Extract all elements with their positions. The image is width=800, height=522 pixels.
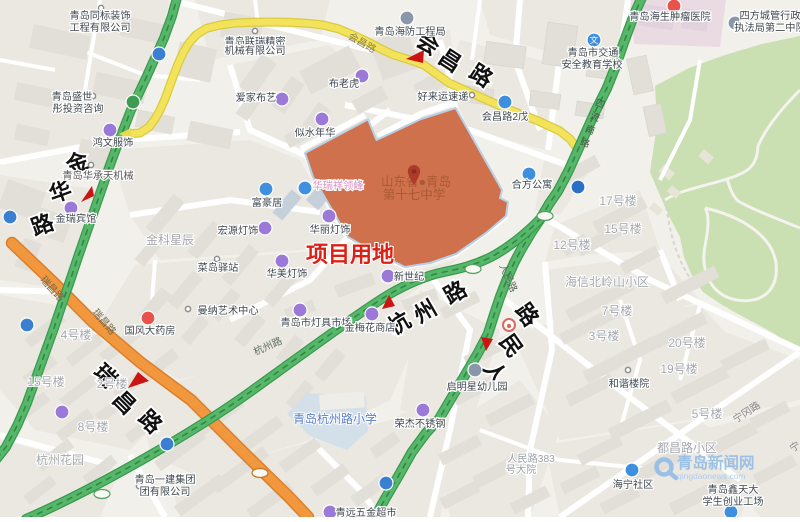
svg-text:曼纳艺术中心: 曼纳艺术中心 — [197, 304, 258, 317]
svg-text:金瑞宾馆: 金瑞宾馆 — [56, 212, 97, 225]
svg-text:荣杰不锈钢: 荣杰不锈钢 — [395, 417, 446, 430]
svg-text:青岛华承天机械: 青岛华承天机械 — [62, 169, 133, 182]
svg-text:7号楼: 7号楼 — [602, 303, 633, 318]
svg-text:安全教育学校: 安全教育学校 — [561, 58, 622, 71]
svg-text:19号楼: 19号楼 — [660, 361, 697, 376]
svg-text:金梅花商店: 金梅花商店 — [345, 321, 396, 334]
svg-text:华瑞祥领峰: 华瑞祥领峰 — [313, 179, 364, 192]
svg-text:15号楼: 15号楼 — [604, 221, 641, 236]
svg-text:都昌路小区: 都昌路小区 — [657, 440, 717, 455]
svg-text:qingdaonews.com: qingdaonews.com — [677, 471, 746, 481]
svg-text:青岛一建集团: 青岛一建集团 — [134, 473, 195, 486]
svg-text:和谐楼院: 和谐楼院 — [609, 377, 650, 390]
svg-text:新世纪: 新世纪 — [394, 270, 425, 283]
svg-text:华美灯饰: 华美灯饰 — [267, 267, 308, 280]
svg-text:海宁社区: 海宁社区 — [613, 478, 654, 491]
svg-text:4号楼: 4号楼 — [61, 327, 92, 342]
svg-text:学生创业工场: 学生创业工场 — [702, 495, 763, 508]
svg-text:第十七中学: 第十七中学 — [383, 187, 446, 202]
svg-text:金科星辰: 金科星辰 — [146, 232, 194, 247]
svg-text:3号楼: 3号楼 — [589, 328, 620, 343]
svg-text:启明星幼儿园: 启明星幼儿园 — [446, 380, 507, 393]
svg-text:机械有限公司: 机械有限公司 — [224, 44, 285, 57]
svg-text:青岛海生肿瘤医院: 青岛海生肿瘤医院 — [629, 10, 711, 23]
svg-text:8号楼: 8号楼 — [78, 419, 109, 434]
svg-text:5号楼: 5号楼 — [692, 406, 723, 421]
svg-text:团有限公司: 团有限公司 — [140, 485, 191, 498]
svg-text:青岛盛世: 青岛盛世 — [52, 90, 93, 103]
svg-text:四方城管行政: 四方城管行政 — [739, 9, 800, 22]
svg-text:爱家布艺: 爱家布艺 — [236, 91, 277, 104]
svg-text:杭州花园: 杭州花园 — [36, 452, 84, 467]
svg-text:青岛新闻网: 青岛新闻网 — [677, 453, 755, 472]
svg-text:2号楼: 2号楼 — [97, 376, 128, 391]
svg-text:青岛海防工程局: 青岛海防工程局 — [374, 25, 445, 38]
svg-text:海信北岭山小区: 海信北岭山小区 — [565, 274, 649, 289]
svg-text:青岛市灯具市场: 青岛市灯具市场 — [280, 316, 351, 329]
svg-text:菜岛驿站: 菜岛驿站 — [198, 261, 239, 274]
svg-text:鸿文服饰: 鸿文服饰 — [93, 136, 134, 149]
svg-text:青岛同标装饰: 青岛同标装饰 — [69, 9, 130, 22]
svg-text:似水年华: 似水年华 — [295, 126, 336, 139]
svg-text:人民路383: 人民路383 — [507, 452, 555, 465]
svg-text:17号楼: 17号楼 — [599, 193, 636, 208]
svg-text:彤投资咨询: 彤投资咨询 — [53, 102, 104, 115]
svg-text:华丽灯饰: 华丽灯饰 — [310, 223, 351, 236]
svg-text:12号楼: 12号楼 — [553, 237, 590, 252]
svg-text:20号楼: 20号楼 — [668, 335, 705, 350]
svg-text:青远五金超市: 青远五金超市 — [335, 506, 396, 517]
svg-text:宏源灯饰: 宏源灯饰 — [218, 224, 259, 237]
svg-text:执法局第二中队: 执法局第二中队 — [734, 21, 800, 34]
svg-text:青岛鑫天大: 青岛鑫天大 — [708, 483, 759, 496]
svg-text:青岛市交通: 青岛市交通 — [568, 46, 619, 59]
svg-text:富豪居: 富豪居 — [252, 196, 283, 209]
svg-text:号大院: 号大院 — [506, 463, 537, 476]
svg-text:国风大药房: 国风大药房 — [125, 324, 176, 337]
svg-text:布老虎: 布老虎 — [329, 77, 360, 90]
svg-text:青岛杭州路小学: 青岛杭州路小学 — [293, 411, 377, 426]
svg-text:文: 文 — [590, 35, 599, 45]
svg-text:会昌路2戊: 会昌路2戊 — [482, 110, 528, 123]
svg-text:合方公寓: 合方公寓 — [512, 178, 553, 191]
svg-text:15号楼: 15号楼 — [27, 374, 64, 389]
svg-text:好来运速递: 好来运速递 — [418, 90, 469, 103]
svg-text:项目用地: 项目用地 — [306, 242, 394, 267]
svg-text:工程有限公司: 工程有限公司 — [69, 21, 130, 34]
